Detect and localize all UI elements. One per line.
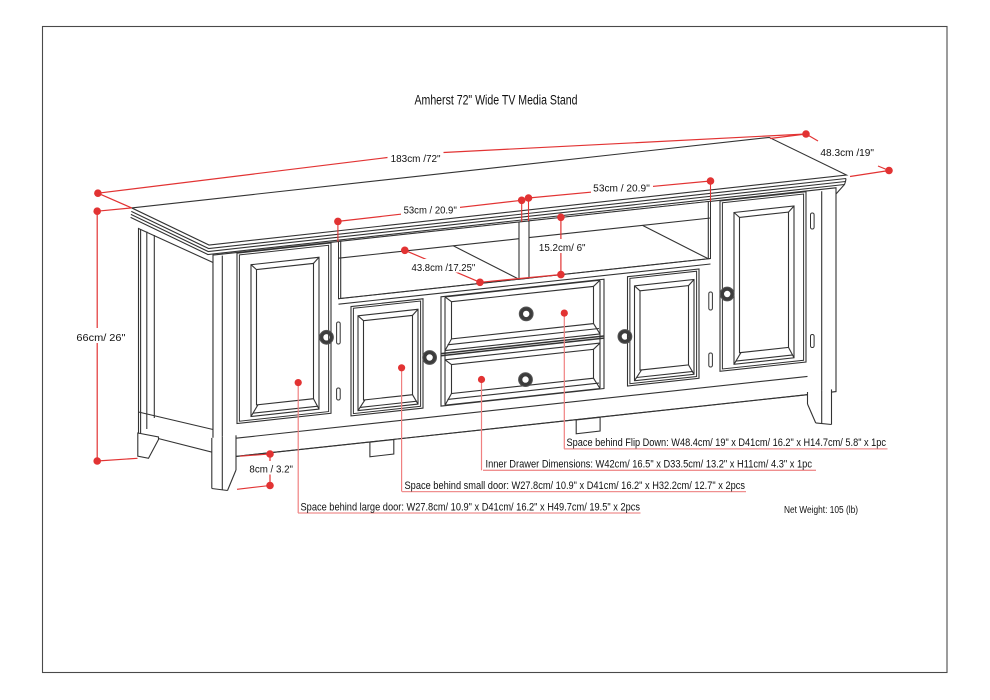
svg-text:53cm / 20.9'': 53cm / 20.9'' — [404, 206, 457, 217]
svg-text:15.2cm/ 6": 15.2cm/ 6" — [539, 243, 586, 254]
svg-text:8cm / 3.2": 8cm / 3.2" — [249, 464, 293, 475]
svg-text:Net Weight: 105 (lb): Net Weight: 105 (lb) — [784, 505, 858, 516]
svg-text:48.3cm /19": 48.3cm /19" — [820, 148, 874, 159]
svg-text:Space behind Flip Down: W48.4c: Space behind Flip Down: W48.4cm/ 19" x D… — [567, 437, 887, 449]
svg-text:Space behind small door: W27.8: Space behind small door: W27.8cm/ 10.9" … — [405, 480, 746, 492]
svg-text:183cm /72": 183cm /72" — [391, 154, 441, 165]
svg-text:66cm/ 26": 66cm/ 26" — [76, 333, 125, 344]
svg-text:Inner Drawer Dimensions: W42cm: Inner Drawer Dimensions: W42cm/ 16.5" x … — [486, 459, 813, 471]
svg-text:Space behind large door: W27.8: Space behind large door: W27.8cm/ 10.9" … — [301, 501, 641, 513]
svg-text:53cm / 20.9'': 53cm / 20.9'' — [593, 184, 650, 195]
svg-text:Amherst 72" Wide TV Media Stan: Amherst 72" Wide TV Media Stand — [415, 93, 578, 108]
svg-text:43.8cm /17.25": 43.8cm /17.25" — [412, 263, 476, 274]
